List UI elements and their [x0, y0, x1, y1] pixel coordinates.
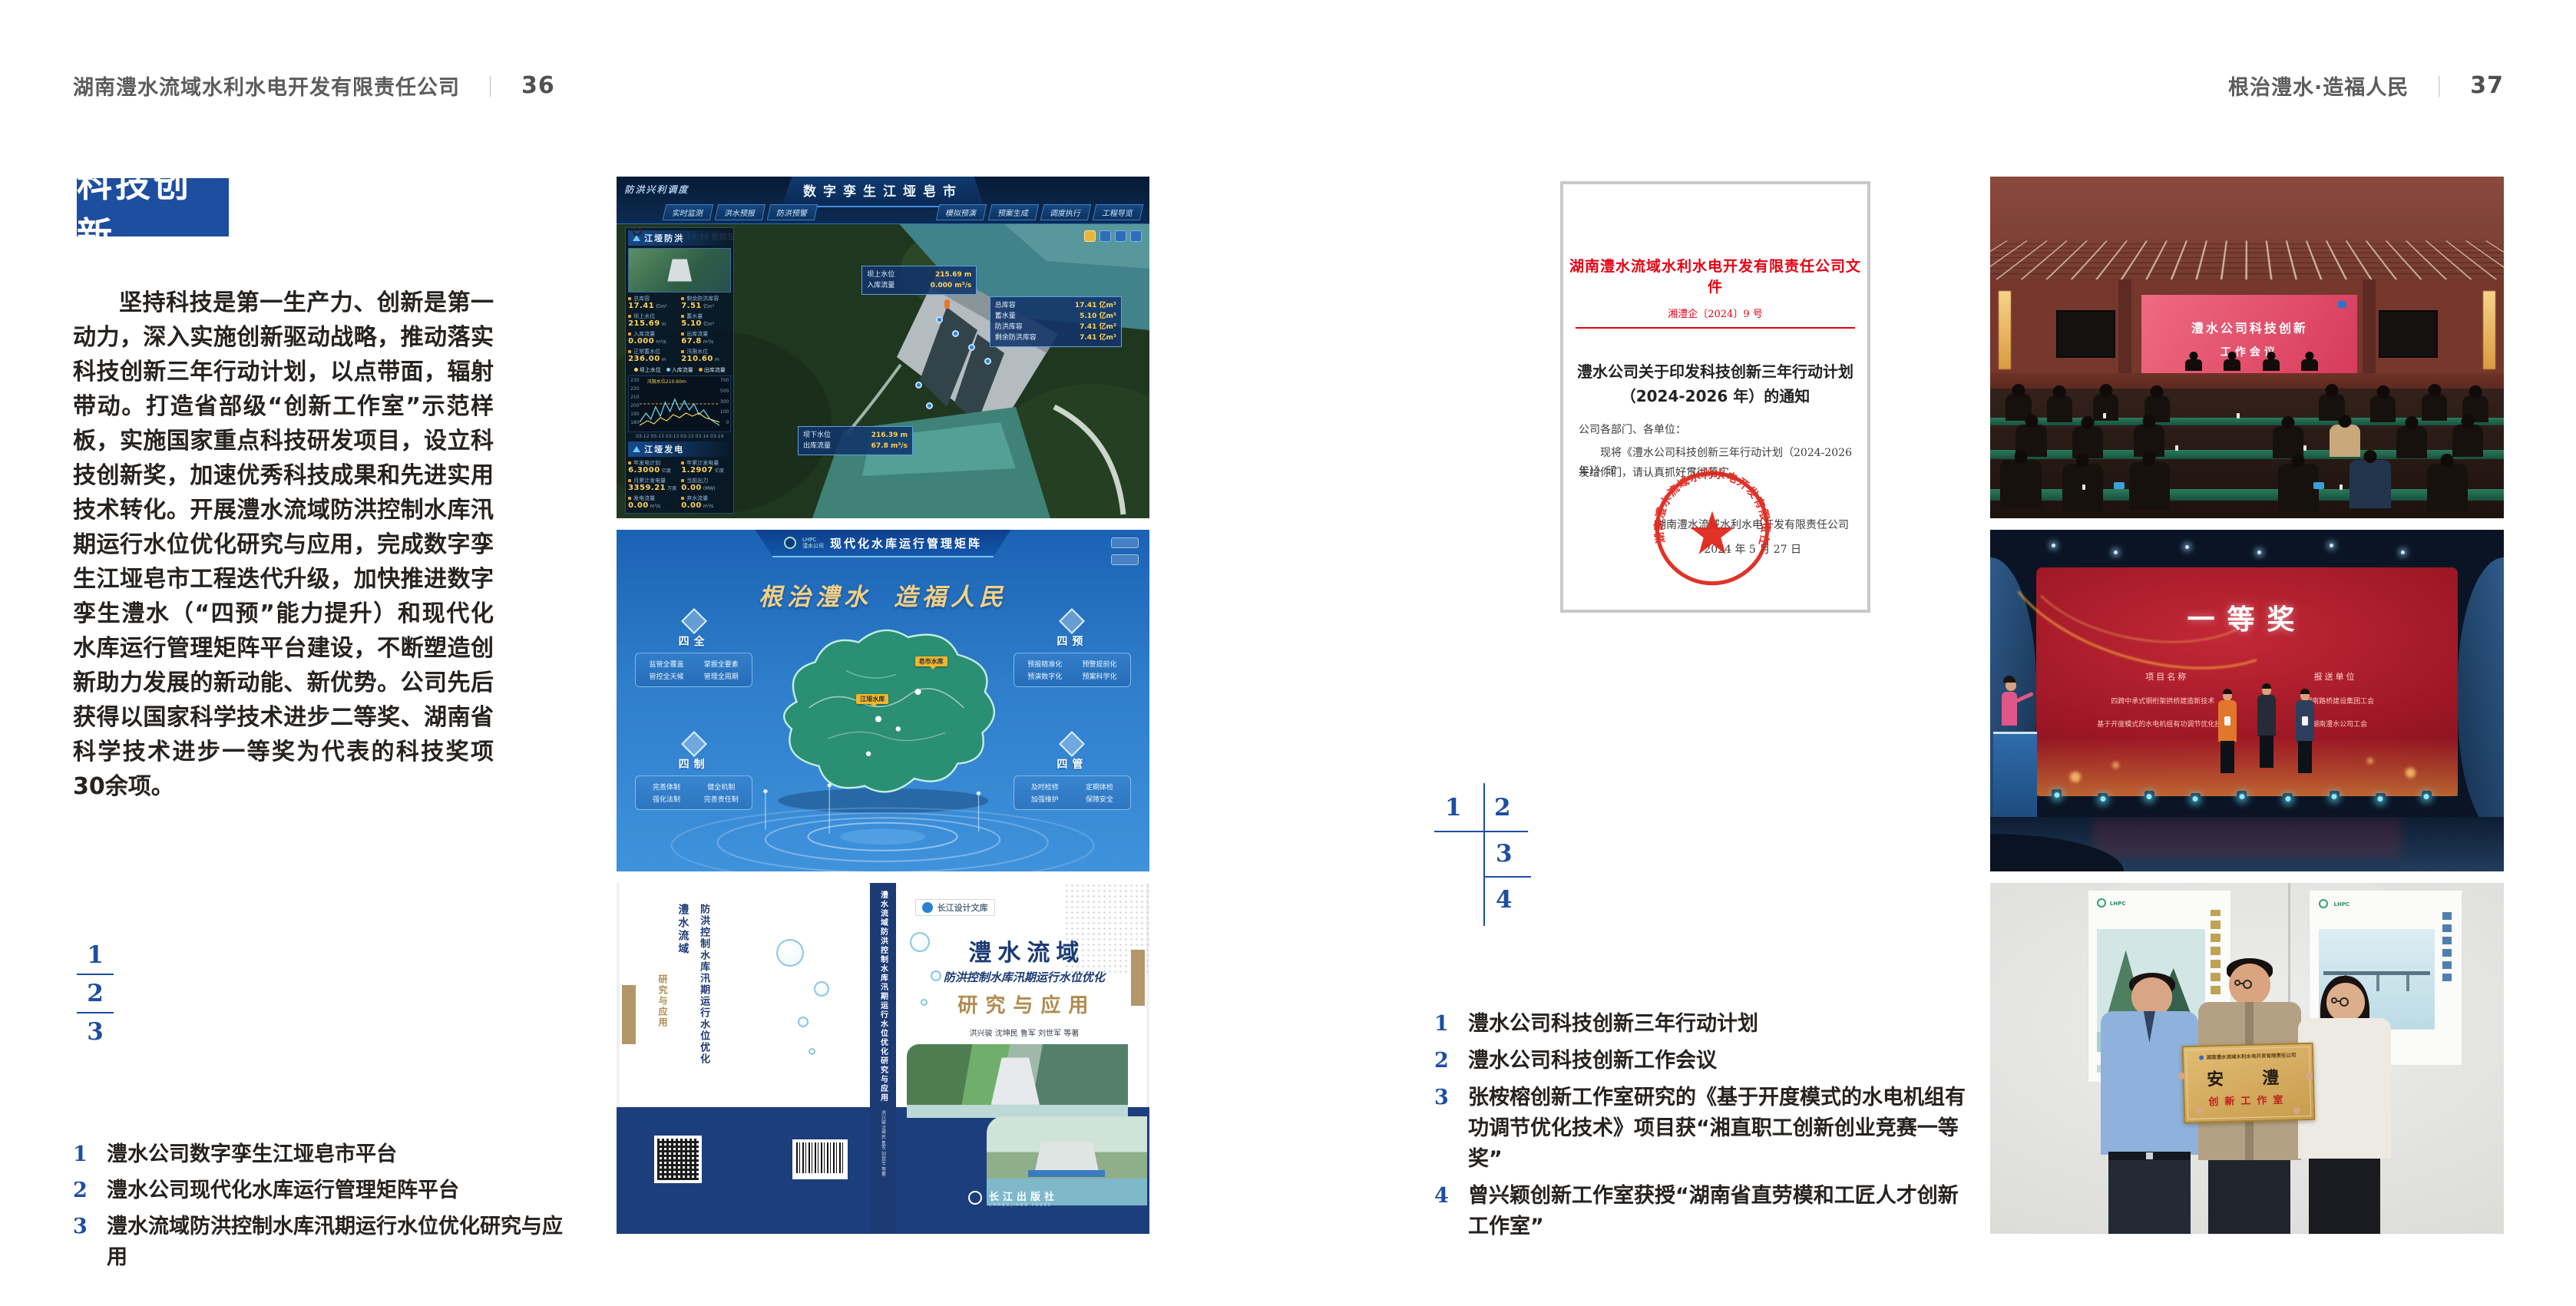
stat-unit: 亿度: [662, 468, 671, 474]
poster-logo-text: LHPC: [2334, 901, 2350, 908]
platform-sidebar: 江垭防洪 总库容17.41亿m³ 剩余防洪库容7.51亿m³ 坝上水位215.6…: [625, 227, 734, 514]
audience-figure: [2370, 395, 2396, 423]
gate-marker[interactable]: [984, 358, 991, 365]
legend-item: 出库流量: [699, 366, 726, 374]
stat-cell: 出库流量67.8m³/s: [681, 330, 731, 346]
front-title-main: 澧水流域: [915, 934, 1139, 967]
tick: 300: [720, 399, 729, 405]
woman-pants: [2309, 1159, 2381, 1234]
group-item: 掌握全要素: [695, 659, 748, 669]
speaker-silhouette: [2263, 359, 2280, 371]
power-panel-title-bar: 江垭发电: [628, 441, 731, 457]
index-divider: [1483, 876, 1531, 878]
legend-item: 入库流量: [666, 366, 693, 374]
power-panel-title: 江垭发电: [644, 443, 684, 455]
publisher-text: 长江出版社 CHANGJIANG PRESS: [989, 1189, 1058, 1208]
official-document: 湖南澧水流域水利水电开发有限责任公司文件 湘澧企〔2024〕9 号 澧水公司关于…: [1560, 181, 1870, 613]
water-bottle: [2237, 413, 2240, 418]
stat-unit: 亿m³: [703, 322, 714, 327]
screen-title-line1: 澧水公司科技创新: [2141, 318, 2357, 336]
tip-label: 坝上水位: [867, 269, 894, 280]
logo-cn: 澧水公司: [802, 543, 824, 549]
stat-value: 0.00: [628, 501, 649, 510]
wall-sconce: [2483, 291, 2495, 369]
worker-figure: [944, 299, 950, 309]
stat-value: 215.69: [628, 319, 660, 328]
bubble-graphic: [814, 981, 829, 997]
stage-fixture: [2330, 791, 2340, 805]
speaker-silhouette: [2224, 359, 2240, 371]
index-divider: [77, 974, 114, 975]
stage-fixture: [2098, 793, 2108, 808]
publisher-name: 长江出版社: [989, 1189, 1058, 1203]
tip-label: 坝下水位: [803, 430, 831, 441]
page-number-left: 36: [521, 72, 555, 99]
awardee-blue: [2293, 690, 2316, 782]
host-podium: [1993, 732, 2037, 824]
tab-flood-forecast[interactable]: 洪水预报: [715, 204, 766, 220]
group-item: 管控全天候: [640, 671, 693, 681]
man2-pants: [2208, 1160, 2290, 1234]
tip-label: 剩余防洪库容: [995, 332, 1037, 343]
stat-unit: m: [715, 357, 719, 362]
caption-text: 曾兴颖创新工作室获授“湖南省直劳模和工匠人才创新工作室”: [1468, 1181, 1972, 1242]
matrix-slogan: 根治澧水造福人民: [617, 577, 1149, 612]
poster-vertical-calligraphy: [2442, 911, 2452, 981]
stage-fixture: [2376, 793, 2386, 808]
fixture-lens: [2147, 794, 2152, 799]
tick: 200: [630, 403, 639, 408]
awardee-orange: [2216, 690, 2239, 782]
stat-value: 0.00: [681, 501, 702, 510]
award-col1-header: 项目名称: [2095, 670, 2239, 683]
page-number-right: 37: [2470, 72, 2504, 99]
bubble-graphic: [809, 1048, 815, 1055]
stat-cell: 年累计发电量1.2907亿度: [681, 459, 731, 475]
tick: 230: [630, 378, 639, 383]
back-title-1: 澧水流域: [675, 904, 690, 956]
legend-dot: [634, 368, 638, 372]
document-title-line1: 澧水公司关于印发科技创新三年行动计划: [1563, 359, 1867, 382]
tab-project-tour[interactable]: 工程导览: [1092, 204, 1143, 220]
water-bottle: [2175, 445, 2178, 451]
legend-label: 坝上水位: [640, 367, 661, 373]
layers-icon[interactable]: [1100, 230, 1111, 242]
caption-text: 张桉榕创新工作室研究的《基于开度模式的水电机组有功调节优化技术》项目获“湘直职工…: [1468, 1083, 1972, 1175]
fixture-lens: [2424, 794, 2429, 799]
group-item: 预报精准化: [1018, 659, 1071, 669]
chart-yaxis-right: 7005003001000: [720, 378, 729, 425]
caption-num: 3: [73, 1212, 93, 1273]
document-salutation: 公司各部门、各单位：: [1579, 421, 1686, 439]
stat-unit: m³/s: [703, 339, 713, 345]
photo-award-ceremony: 一等奖 项目名称 报送单位 四跨中承式钢桁架拱桥建造新技术 湖南路桥建设集团工会…: [1990, 530, 2504, 871]
barcode-bars: [796, 1142, 844, 1173]
map-label-jiangya[interactable]: 江垭水库: [856, 694, 888, 704]
header-slogan: 根治澧水·造福人民: [2228, 71, 2409, 101]
torso: [2257, 695, 2276, 736]
hand: [2178, 1073, 2185, 1080]
tip-value: 67.8 m³/s: [871, 441, 908, 451]
screen-title-line2: 工作会议: [2141, 344, 2357, 359]
stat-unit: m: [662, 322, 666, 327]
settings-icon[interactable]: [1130, 230, 1142, 242]
front-photo-dam: [907, 1044, 1128, 1118]
poster-logo-text: LHPC: [2110, 901, 2126, 907]
tip-label: 蓄水量: [995, 311, 1016, 322]
bridge-pier: [2406, 975, 2409, 991]
stat-unit: 亿度: [715, 468, 724, 474]
group-name: 四制: [635, 756, 752, 772]
tip-value: 0.000 m³/s: [931, 280, 972, 291]
legend-dot: [699, 368, 703, 372]
hair: [2223, 689, 2232, 694]
fixture-lens: [2239, 794, 2244, 799]
company-seal-icon: 湖南澧水流域水利水电开发有限责任公司: [1649, 465, 1775, 591]
audience-figure-blue: [2349, 460, 2391, 508]
tick: 210: [630, 395, 639, 400]
spine-title: 澧水流域防洪控制水库汛期运行水位优化研究与应用: [877, 891, 888, 1103]
stat-unit: m: [662, 357, 666, 362]
chart-legend: 坝上水位 入库流量 出库流量: [628, 366, 731, 374]
tip-value: 216.39 m: [871, 430, 908, 441]
fixture-lens: [2332, 794, 2337, 799]
tip-value: 7.41 亿m³: [1080, 322, 1116, 332]
matrix-button[interactable]: [1111, 554, 1139, 565]
stat-unit: 亿m³: [656, 304, 666, 309]
audience-figure: [2427, 464, 2469, 511]
stage-fixture: [2237, 791, 2247, 805]
chart-lines: [640, 384, 719, 430]
matrix-title-bar: LHPC澧水公司 现代化水库运行管理矩阵: [755, 530, 1010, 557]
caption-text: 澧水公司现代化水库运行管理矩阵平台: [107, 1175, 459, 1206]
tick: 03-14: [710, 434, 723, 439]
header-company: 湖南澧水流域水利水电开发有限责任公司: [73, 71, 460, 101]
tick: 190: [630, 412, 639, 417]
publisher-block: 长江出版社 CHANGJIANG PRESS: [968, 1189, 1058, 1208]
belt-buckle: [2146, 1152, 2153, 1159]
audience-figure-tan-coat: [2330, 425, 2360, 457]
stat-value: 67.8: [681, 337, 702, 346]
platform-corner-label: 防洪兴利调度: [624, 183, 689, 196]
award-unit-2: 湖南澧水公司工会: [2264, 719, 2415, 729]
tick: 03-13: [650, 434, 663, 439]
audience-figure: [2422, 394, 2447, 422]
roof-shape: [1028, 1170, 1105, 1177]
gauge-unit1: 0.001#机组: [635, 513, 655, 514]
matrix-title: 现代化水库运行管理矩阵: [830, 535, 982, 551]
stat-cell: 发电流量0.00m³/s: [628, 494, 678, 511]
barcode: [792, 1139, 848, 1179]
back-title-3: 研究与应用: [656, 974, 670, 1028]
tissue-box: [2313, 482, 2324, 489]
stat-cell: 当前出力0.00(MW): [681, 477, 731, 493]
figure-index-right: 1 2 3 4: [1434, 783, 1542, 934]
stat-cell: 正常蓄水位236.00m: [628, 348, 678, 364]
audience-figure: [2000, 460, 2042, 508]
red-rule: [1576, 327, 1855, 329]
group-item: 预警提前化: [1073, 659, 1126, 669]
speaker-silhouette: [2185, 359, 2202, 371]
index-divider: [1434, 831, 1528, 832]
locate-icon[interactable]: [1115, 230, 1126, 242]
stat-cell: 蓄水量5.10亿m³: [681, 312, 731, 329]
stat-cell: 弃水流量0.00m³/s: [681, 494, 731, 511]
tab-flood-warning[interactable]: 防洪预警: [767, 204, 818, 220]
caption-num: 2: [73, 1175, 93, 1206]
water-bottle: [2082, 484, 2085, 490]
fixture-lens: [2100, 796, 2105, 802]
trophy: [2302, 716, 2308, 726]
led-screen: 一等奖 项目名称 报送单位 四跨中承式钢桁架拱桥建造新技术 湖南路桥建设集团工会…: [2036, 567, 2458, 796]
caption-text: 澧水公司科技创新工作会议: [1468, 1046, 1717, 1076]
tick: 03-12: [636, 434, 649, 439]
plaque-logo-icon: [2199, 1055, 2204, 1060]
fixture-lens: [2054, 792, 2059, 798]
caption-text: 澧水流域防洪控制水库汛期运行水位优化研究与应用: [107, 1212, 580, 1273]
stat-unit: 万度: [667, 486, 676, 491]
group-item: 预案科学化: [1073, 671, 1126, 681]
wall-pillar: [2363, 279, 2376, 388]
qr-code: [654, 1136, 702, 1183]
header-right: 根治澧水·造福人民 ｜ 37: [2228, 71, 2504, 101]
poster-vertical-calligraphy: [2211, 910, 2221, 994]
tab-realtime-monitoring[interactable]: 实时监测: [663, 204, 713, 220]
caption-list-right: 1澧水公司科技创新三年行动计划 2澧水公司科技创新工作会议 3张桉榕创新工作室研…: [1434, 1009, 1972, 1242]
front-title-sub: 防洪控制水库汛期运行水位优化: [904, 969, 1144, 985]
index-divider: [1483, 783, 1485, 926]
stat-value: 0.000: [628, 337, 654, 346]
stat-cell: 入库流量0.000m³/s: [628, 330, 678, 346]
stat-value: 210.60: [681, 355, 713, 363]
flood-panel-title-bar: 江垭防洪: [628, 230, 731, 246]
map-label-zaoshi[interactable]: 皂市水库: [915, 656, 947, 666]
caption-row: 2澧水公司科技创新工作会议: [1434, 1046, 1972, 1076]
award-title: 一等奖: [2036, 597, 2458, 637]
stat-cell: 汛限水位210.60m: [681, 348, 731, 364]
gate-marker[interactable]: [926, 402, 933, 409]
water-bottle: [2303, 445, 2306, 451]
photo-innovation-meeting: 澧水公司科技创新 工作会议: [1990, 177, 2504, 518]
figure-index-3: 3: [1496, 840, 1513, 868]
stage-fixture: [2283, 793, 2293, 808]
collar: [2144, 1011, 2155, 1043]
screen-city-glow: [2036, 737, 2458, 797]
woman-glasses-icon: [2331, 997, 2337, 1003]
figure-index-2: 2: [1494, 794, 1511, 822]
section-title: 科技创新: [77, 178, 229, 236]
platform-tabs-left: 实时监测 洪水预报 防洪预警: [664, 204, 816, 220]
bubble-graphic: [798, 1017, 809, 1027]
lhpc-logo-icon: [2097, 898, 2106, 908]
figure-index-3: 3: [87, 1018, 104, 1046]
stat-value: 7.51: [681, 302, 702, 310]
figure-matrix-platform: LHPC澧水公司 现代化水库运行管理矩阵 根治澧水造福人民 皂市水库 江垭水库 …: [617, 530, 1149, 871]
tip-value: 7.41 亿m³: [1080, 332, 1116, 343]
tab-plan-generation[interactable]: 预案生成: [987, 204, 1038, 220]
man1-belt: [2108, 1152, 2191, 1160]
dam-camera-thumbnail[interactable]: [628, 248, 731, 293]
stat-cell: 月累计发电量3359.21万度: [628, 477, 678, 493]
body-paragraph: 坚持科技是第一生产力、创新是第一动力，深入实施创新驱动战略，推动落实科技创新三年…: [73, 286, 494, 804]
figure-index-2: 2: [87, 980, 104, 1007]
stat-unit: m³/s: [656, 339, 666, 345]
qr-modules: [657, 1139, 699, 1180]
tick: 03-14: [696, 434, 709, 439]
figure-digital-twin-platform: 防洪兴利调度 数字孪生江垭皂市 实时监测 洪水预报 防洪预警 模拟预演 预案生成…: [617, 177, 1149, 518]
back-title-2: 防洪控制水库汛期运行水位优化: [696, 904, 711, 1065]
stat-cell: 剩余防洪库容7.51亿m³: [681, 295, 731, 311]
stage-light: [2401, 551, 2405, 554]
group-siyu: 四预 预报精准化预警提前化 预演数字化预案科学化: [1014, 612, 1131, 687]
matrix-button[interactable]: [1111, 537, 1139, 548]
legs: [2221, 741, 2234, 773]
stat-value: 3359.21: [628, 484, 666, 492]
turbine-gauges: 0.001#机组 102.982#机组 0.003#机组: [628, 513, 731, 514]
legs: [2260, 736, 2273, 768]
slogan-part2: 造福人民: [894, 584, 1007, 611]
header-divider-right: ｜: [2429, 71, 2450, 101]
man1-pants: [2108, 1160, 2191, 1234]
trophy: [2224, 716, 2230, 726]
hair: [2262, 683, 2271, 689]
audience-figure: [2047, 395, 2072, 423]
gauge-value: 102.98: [670, 513, 689, 514]
group-name: 四全: [635, 633, 752, 649]
platform-toolbar-icons: [1080, 230, 1142, 245]
tick: 03-13: [680, 434, 693, 439]
document-title-line2: （2024-2026 年）的通知: [1563, 384, 1867, 406]
tick: 220: [630, 386, 639, 392]
audience-figure: [2396, 426, 2427, 458]
audience-figure: [2452, 425, 2483, 457]
gauge-unit2: 102.982#机组: [670, 513, 689, 514]
dam-shape: [667, 259, 692, 281]
caption-num: 4: [1434, 1181, 1454, 1242]
platform-top-bar: 防洪兴利调度 数字孪生江垭皂市 实时监测 洪水预报 防洪预警 模拟预演 预案生成…: [617, 177, 1149, 224]
meeting-screen: 澧水公司科技创新 工作会议: [2141, 295, 2357, 385]
stat-cell: 总库容17.41亿m³: [628, 295, 678, 311]
chart-yaxis-left: 230220210200190180: [630, 378, 639, 425]
tip-value: 17.41 亿m³: [1075, 300, 1116, 311]
index-divider: [77, 1012, 114, 1013]
wall-tv: [2379, 310, 2438, 358]
group-name: 四管: [1014, 756, 1131, 772]
figure-index-left: 1 2 3: [77, 941, 114, 1046]
stat-value: 236.00: [628, 355, 660, 363]
caption-num: 1: [73, 1139, 93, 1170]
stat-value: 0.00: [681, 484, 702, 492]
document-masthead: 湖南澧水流域水利水电开发有限责任公司文件: [1563, 255, 1867, 296]
tab-dispatch-execution[interactable]: 调度执行: [1040, 204, 1090, 220]
caption-row: 4曾兴颖创新工作室获授“湖南省直劳模和工匠人才创新工作室”: [1434, 1181, 1972, 1242]
tick: 500: [720, 388, 729, 394]
stat-cell: 坝上水位215.69m: [628, 312, 678, 329]
front-title-tail: 研究与应用: [915, 990, 1139, 1018]
caption-num: 1: [1434, 1009, 1454, 1040]
lhpc-logo-icon: [2319, 899, 2328, 908]
bridge-pier: [2376, 975, 2379, 991]
drop-icon: [681, 608, 707, 634]
group-siquan: 四全 监管全覆盖掌握全要素 管控全天候管理全周期: [635, 612, 752, 687]
header-left: 湖南澧水流域水利水电开发有限责任公司 ｜ 36: [73, 71, 555, 101]
caption-row: 3张桉榕创新工作室研究的《基于开度模式的水电机组有功调节优化技术》项目获“湘直职…: [1434, 1083, 1972, 1175]
tip-value: 5.10 亿m³: [1080, 311, 1116, 322]
ripple-rings: [670, 782, 1096, 871]
gauge-unit3: 0.003#机组: [704, 513, 724, 514]
screen-logo-icon: [2338, 301, 2346, 308]
stage-fixture: [2191, 793, 2201, 808]
stat-unit: 亿m³: [703, 304, 714, 309]
award-col2-header: 报送单位: [2264, 670, 2407, 683]
changjiang-press-logo-icon: [968, 1191, 982, 1205]
stage-fixture: [2052, 789, 2062, 804]
fixture-lens: [2193, 796, 2198, 802]
tooltip-downstream: 坝下水位216.39 m 出库流量67.8 m³/s: [798, 426, 913, 455]
gauge-value: 0.00: [704, 513, 724, 514]
tick: 700: [720, 378, 729, 383]
tick: 0: [720, 420, 729, 425]
stage-fixture: [2422, 791, 2432, 805]
gate-marker[interactable]: [968, 344, 975, 351]
tip-label: 总库容: [995, 300, 1016, 311]
group-panel: 监管全覆盖掌握全要素 管控全天候管理全周期: [635, 653, 752, 687]
caption-num: 2: [1434, 1046, 1454, 1076]
floor-reflection: [2093, 820, 2401, 858]
desk-row: [1990, 450, 2504, 459]
gate-marker[interactable]: [915, 382, 922, 388]
changjiang-design-logo-icon: [922, 902, 933, 913]
platform-tabs-right: 模拟预演 预案生成 调度执行 工程导览: [937, 204, 1142, 220]
chart-xaxis: 03-1203-1303-1303-1303-1403-14: [628, 434, 731, 439]
tip-label: 防洪库容: [995, 322, 1023, 332]
platform-title: 数字孪生江垭皂市: [782, 177, 984, 207]
logo-en: LHPC: [802, 537, 816, 543]
presenter-suit: [2255, 685, 2278, 780]
group-name: 四预: [1014, 633, 1131, 649]
stage-fixture: [2144, 791, 2154, 805]
audience-figure: [2278, 464, 2320, 511]
dam-shape: [1035, 1142, 1099, 1172]
stat-value: 5.10: [681, 319, 702, 328]
audience-figure: [2072, 426, 2103, 458]
tab-simulation[interactable]: 模拟预演: [935, 204, 986, 220]
group-item: 预演数字化: [1018, 671, 1071, 681]
hair: [2300, 689, 2310, 694]
tick: 180: [630, 420, 639, 425]
audience-figure: [2129, 462, 2171, 510]
stat-unit: m³/s: [703, 504, 713, 509]
dam-shape: [991, 1057, 1040, 1104]
alert-icon[interactable]: [1084, 230, 1096, 242]
caption-text: 澧水公司数字孪生江垭皂市平台: [107, 1139, 397, 1170]
stat-value: 1.2907: [681, 466, 713, 474]
slogan-part1: 根治澧水: [759, 584, 872, 611]
flood-stats-grid: 总库容17.41亿m³ 剩余防洪库容7.51亿m³ 坝上水位215.69m 蓄水…: [628, 295, 731, 364]
lhpc-logo-text: LHPC澧水公司: [802, 537, 824, 549]
water-bottle: [2103, 413, 2106, 418]
brochure-spread: 湖南澧水流域水利水电开发有限责任公司 ｜ 36 根治澧水·造福人民 ｜ 37 科…: [0, 0, 2576, 1306]
book-spine: 澧水流域防洪控制水库汛期运行水位优化研究与应用 洪兴骏 沈坤民 鲁军 刘世军 等…: [870, 883, 897, 1234]
legend-item: 坝上水位: [634, 366, 661, 374]
tissue-box: [2114, 482, 2125, 489]
legs: [2298, 741, 2312, 773]
lhpc-logo-icon: [784, 537, 796, 549]
caption-row: 1澧水公司科技创新三年行动计划: [1434, 1009, 1972, 1040]
group-panel: 预报精准化预警提前化 预演数字化预案科学化: [1014, 653, 1131, 687]
stage-side-panel-right: [2458, 557, 2504, 838]
water-level-chart: 230220210200190180 7005003001000 汛限水位210…: [628, 375, 731, 432]
